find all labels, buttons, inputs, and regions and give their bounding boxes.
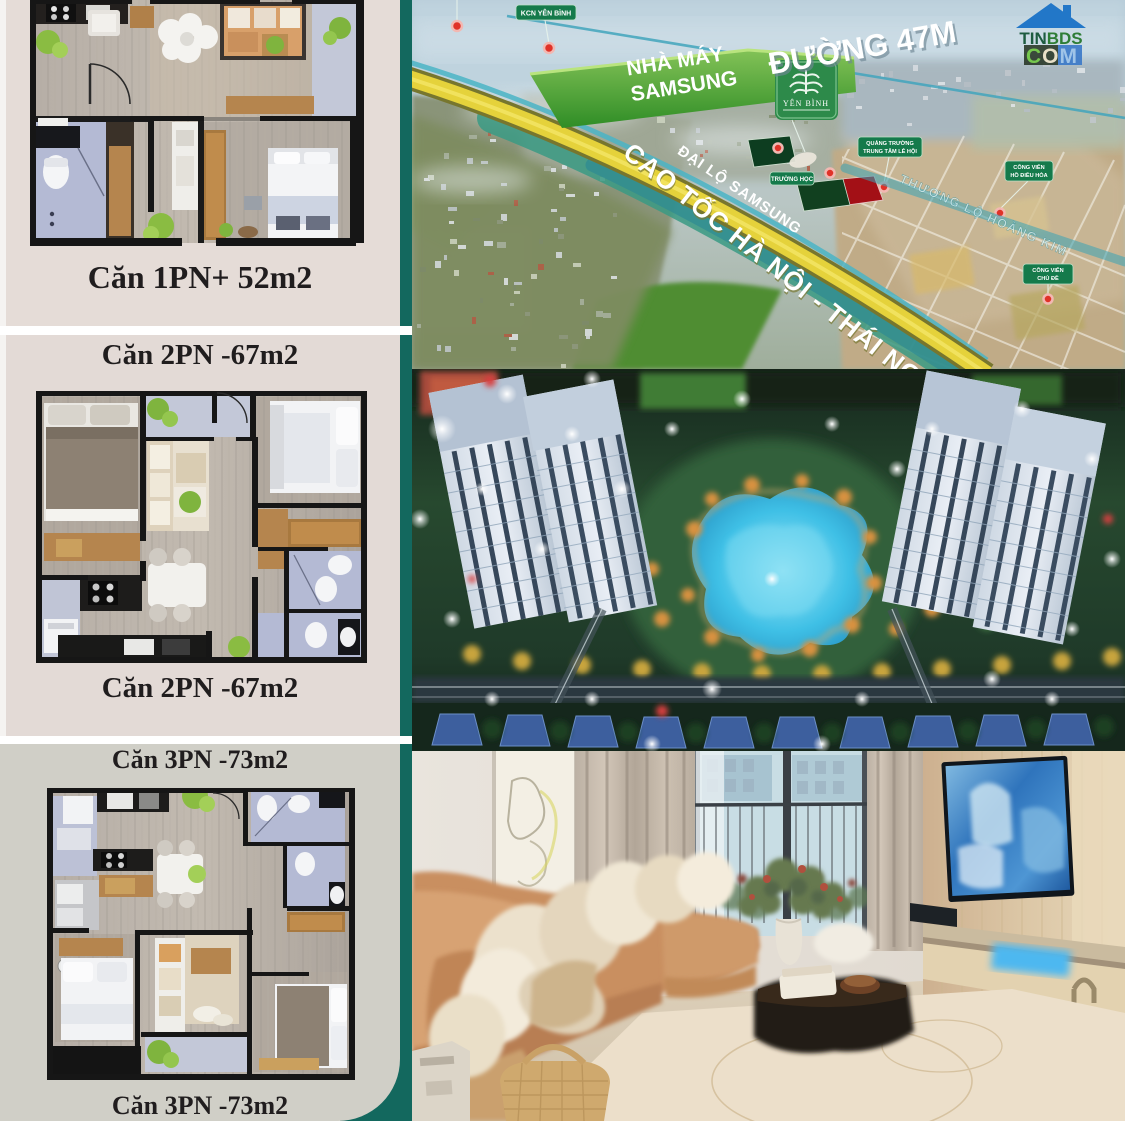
svg-text:TRUNG TÂM LỄ HỘI: TRUNG TÂM LỄ HỘI <box>863 147 917 155</box>
svg-text:CÔNG VIÊN: CÔNG VIÊN <box>1013 163 1044 171</box>
svg-text:CHỦ ĐỀ: CHỦ ĐỀ <box>1037 275 1059 282</box>
svg-text:HỒ ĐIỀU HÒA: HỒ ĐIỀU HÒA <box>1010 171 1047 179</box>
svg-text:CÔNG VIÊN: CÔNG VIÊN <box>1032 266 1063 274</box>
svg-text:QUẢNG TRƯỜNG: QUẢNG TRƯỜNG <box>866 139 914 147</box>
svg-text:YÊN BÌNH: YÊN BÌNH <box>783 98 829 108</box>
svg-text:COM: COM <box>1026 45 1078 68</box>
svg-text:TRƯỜNG HỌC: TRƯỜNG HỌC <box>771 175 814 183</box>
svg-text:KCN YÊN BÌNH: KCN YÊN BÌNH <box>521 9 571 18</box>
